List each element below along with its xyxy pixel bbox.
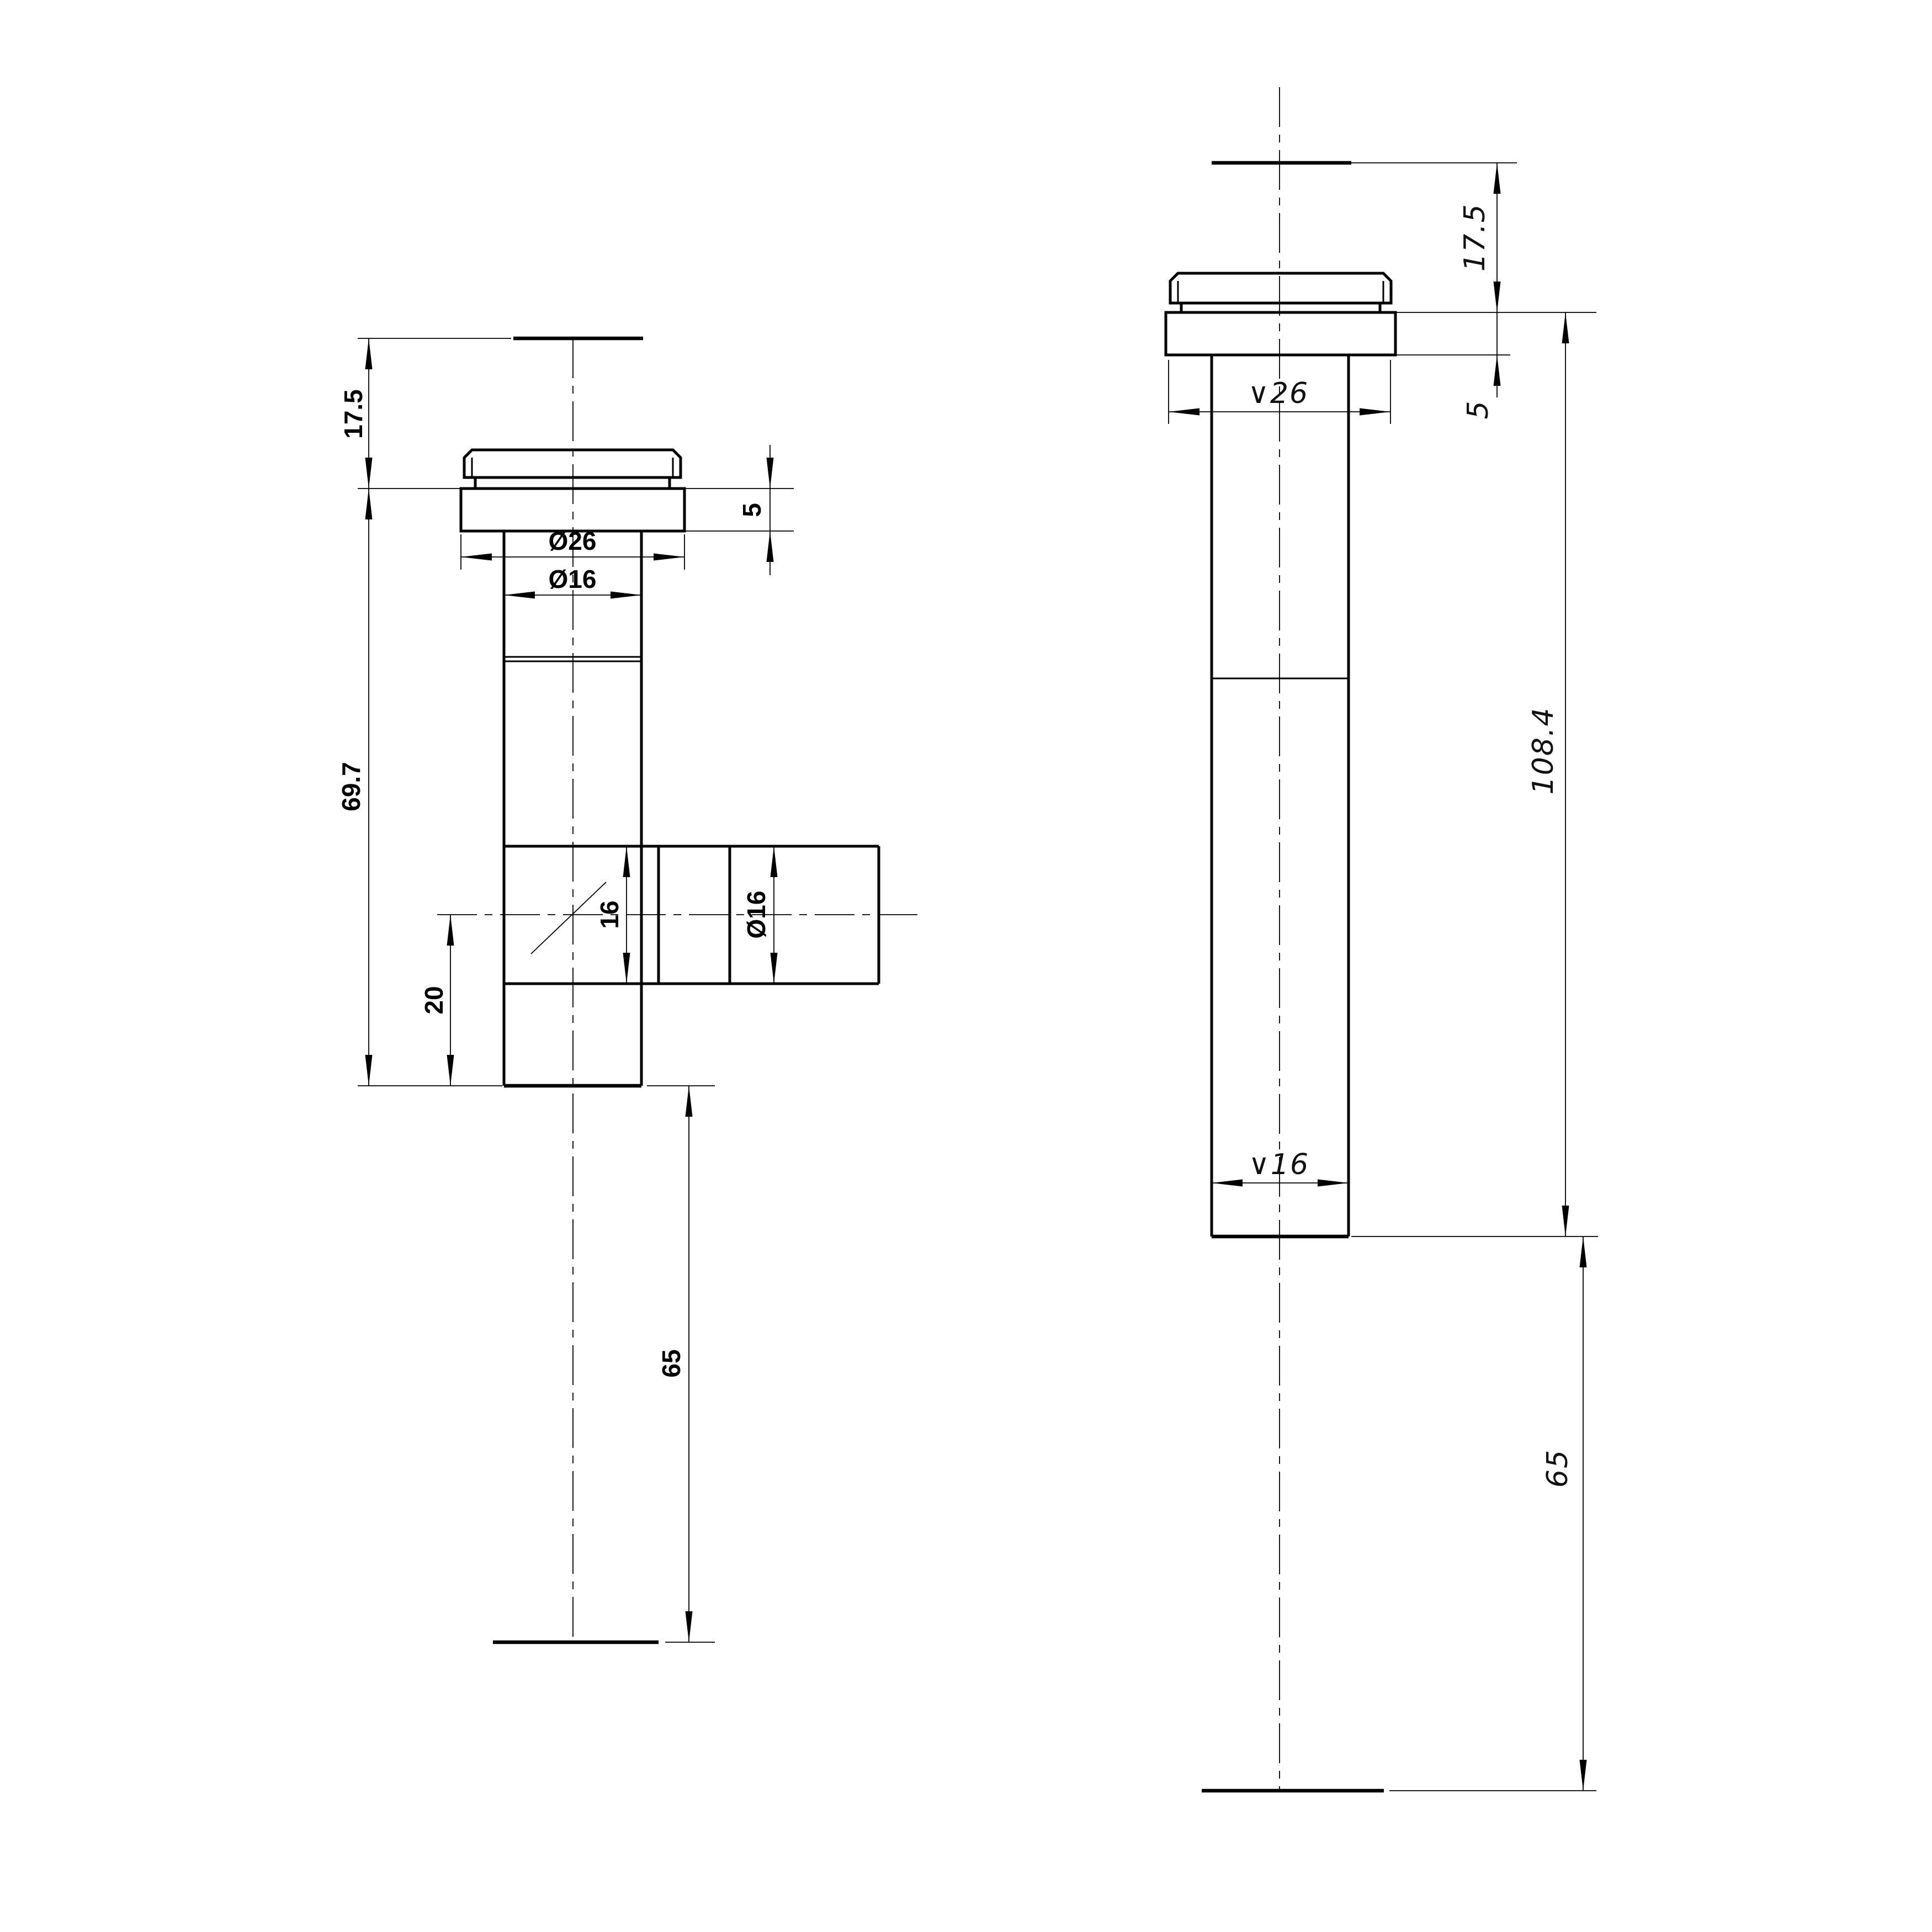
dim-label-branch-d16: Ø16 xyxy=(742,891,771,939)
dim-label-65: 65 xyxy=(657,1349,686,1377)
technical-drawing-canvas: 17.5 69.7 20 Ø26 Ø16 xyxy=(0,0,1932,1932)
dim-label-d16: Ø16 xyxy=(549,565,597,593)
front-dim-branch-bore: 16 xyxy=(595,846,627,984)
front-dim-branch-offset: 20 xyxy=(420,915,450,1086)
dim-label-69-7: 69.7 xyxy=(337,762,365,811)
side-cap xyxy=(1170,273,1391,303)
dim-label-d16: ∨16 xyxy=(1249,1148,1309,1181)
front-dim-branch-diameter: Ø16 xyxy=(742,846,774,984)
side-view: 17.5 5 ∨26 108.4 ∨16 xyxy=(1166,87,1598,1791)
side-flange xyxy=(1166,312,1395,355)
dim-label-5: 5 xyxy=(1462,400,1495,419)
dim-label-17-5: 17.5 xyxy=(339,389,368,439)
front-view: 17.5 69.7 20 Ø26 Ø16 xyxy=(337,338,917,1642)
front-dim-stub-height: 17.5 xyxy=(339,338,511,489)
side-dim-tail-length: 65 xyxy=(1351,1236,1598,1791)
front-dim-pipe-diameter: Ø16 xyxy=(504,565,641,595)
front-cap xyxy=(464,450,681,477)
side-dim-pipe-diameter: ∨16 xyxy=(1212,1148,1349,1183)
side-dim-overall-length: 108.4 xyxy=(1527,312,1565,1236)
dim-label-17-5: 17.5 xyxy=(1458,203,1492,272)
dim-label-d26: ∨26 xyxy=(1248,377,1309,410)
dim-label-65: 65 xyxy=(1541,1449,1574,1488)
dim-label-16: 16 xyxy=(595,900,624,928)
dim-label-5: 5 xyxy=(737,503,766,517)
front-dim-tail-length: 65 xyxy=(647,1086,715,1642)
dim-label-20: 20 xyxy=(420,986,448,1014)
side-dim-flange-thickness: 5 xyxy=(1395,312,1596,420)
side-dim-stub-height: 17.5 xyxy=(1351,163,1517,312)
dim-label-d26: Ø26 xyxy=(549,527,597,555)
dim-label-108-4: 108.4 xyxy=(1527,707,1560,795)
front-outline xyxy=(461,338,879,1642)
side-outline xyxy=(1166,163,1596,1791)
front-dim-flange-thickness: 5 xyxy=(670,445,794,575)
